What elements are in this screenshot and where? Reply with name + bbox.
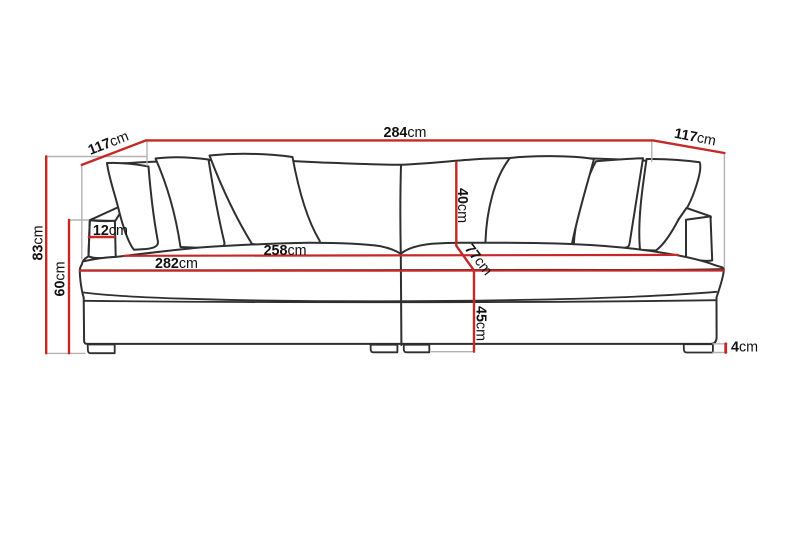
svg-text:258cm: 258cm — [264, 243, 307, 259]
svg-text:4cm: 4cm — [731, 340, 758, 356]
svg-text:12cm: 12cm — [93, 223, 128, 239]
svg-text:282cm: 282cm — [155, 256, 198, 272]
svg-text:83cm: 83cm — [31, 226, 47, 261]
svg-text:284cm: 284cm — [384, 125, 427, 141]
svg-text:60cm: 60cm — [53, 262, 69, 297]
svg-text:40cm: 40cm — [454, 188, 470, 223]
svg-text:45cm: 45cm — [473, 306, 489, 341]
